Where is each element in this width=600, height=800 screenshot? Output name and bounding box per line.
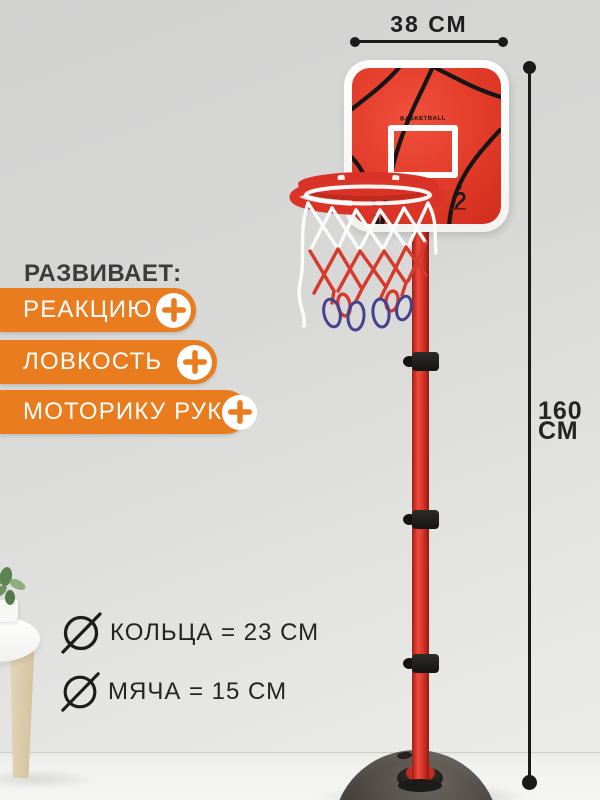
spec-ring-diameter: КОЛЬЦА = 23 СМ (58, 610, 319, 656)
height-unit: СМ (538, 421, 583, 441)
socket-lip (398, 779, 442, 792)
feature-badge-motor-skills: МОТОРИКУ РУК (0, 390, 248, 434)
hoop-and-net (288, 163, 458, 338)
feature-badge-label: ЛОВКОСТЬ (23, 348, 162, 376)
feature-badge-label: МОТОРИКУ РУК (23, 398, 222, 426)
feature-badge-label: РЕАКЦИЮ (23, 296, 153, 324)
net-red-strands (310, 243, 426, 317)
clamp-body (412, 654, 439, 673)
pole-clamp (403, 654, 439, 674)
diameter-icon (58, 670, 102, 714)
width-dimension-label: 38 СМ (355, 11, 503, 38)
pole-clamp (403, 352, 439, 372)
plus-icon (222, 395, 257, 430)
width-dimension-line (355, 40, 503, 43)
height-dimension-label: 160 СМ (538, 401, 583, 441)
develops-title: РАЗВИВАЕТ: (24, 260, 182, 288)
clamp-body (412, 510, 439, 529)
feature-badge-agility: ЛОВКОСТЬ (0, 340, 217, 384)
plus-icon (156, 293, 191, 328)
net-blue-rings (321, 295, 413, 331)
spec-label: МЯЧА = 15 СМ (108, 678, 287, 706)
dimension-endpoint-dot (350, 37, 360, 47)
spec-label: КОЛЬЦА = 23 СМ (110, 619, 319, 647)
plus-icon (177, 345, 212, 380)
clamp-body (412, 352, 439, 371)
product-card: BASKETBALL (0, 0, 600, 800)
backboard-brand-text: BASKETBALL (388, 115, 458, 122)
dimension-endpoint-dot (498, 37, 508, 47)
plant-leaf (5, 590, 15, 605)
spec-ball-diameter: МЯЧА = 15 СМ (58, 670, 287, 714)
diameter-icon (58, 610, 104, 656)
height-dimension-line (528, 67, 531, 781)
dimension-endpoint-dot (523, 61, 536, 74)
feature-badge-reaction: РЕАКЦИЮ (0, 288, 196, 332)
pole-clamp (403, 510, 439, 530)
dimension-endpoint-dot (522, 775, 537, 790)
